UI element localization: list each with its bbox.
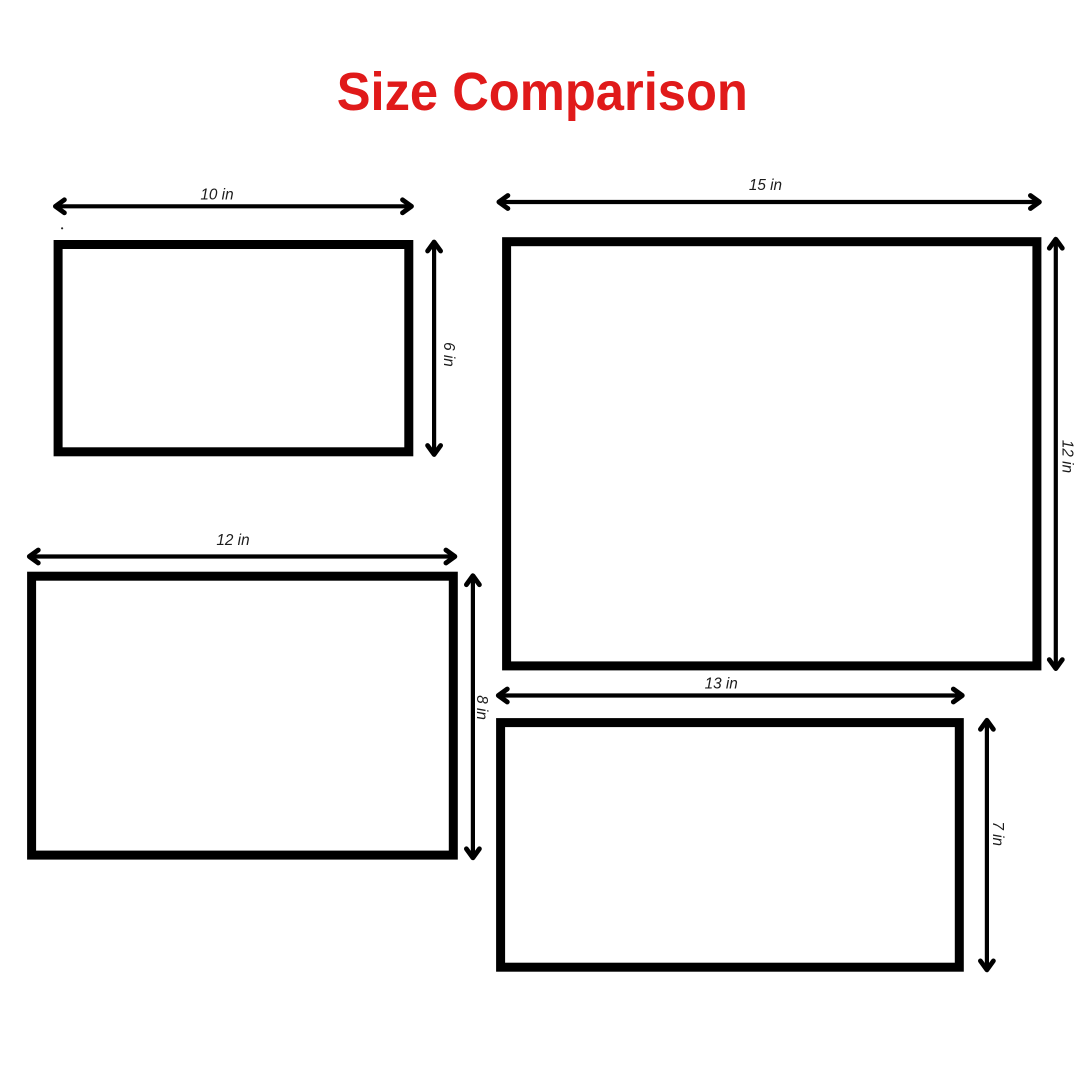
svg-text:8 in: 8 in [473, 695, 490, 720]
svg-text:6 in: 6 in [440, 342, 457, 367]
svg-text:12 in: 12 in [216, 532, 249, 549]
svg-text:15 in: 15 in [749, 177, 782, 194]
svg-text:10 in: 10 in [200, 186, 233, 203]
svg-text:12 in: 12 in [1059, 440, 1076, 473]
svg-text:7 in: 7 in [989, 821, 1006, 846]
svg-text:13 in: 13 in [705, 676, 738, 693]
svg-text:Size Comparison: Size Comparison [337, 62, 748, 122]
